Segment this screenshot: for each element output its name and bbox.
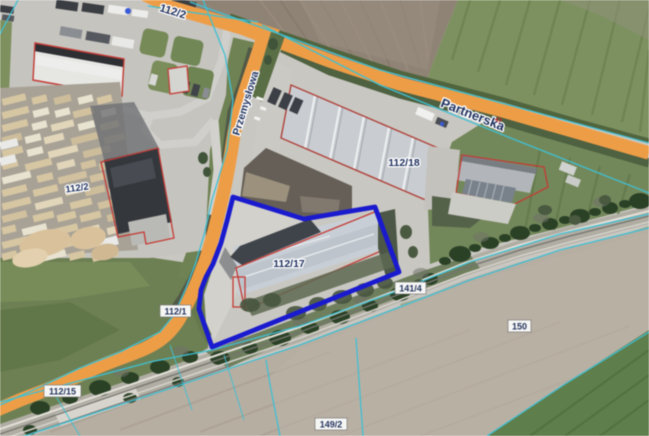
- svg-text:150: 150: [512, 322, 527, 332]
- svg-text:112/17: 112/17: [273, 258, 305, 270]
- svg-text:112/15: 112/15: [49, 387, 76, 397]
- svg-text:112/18: 112/18: [388, 157, 420, 169]
- svg-text:112/1: 112/1: [164, 307, 186, 317]
- svg-text:149/2: 149/2: [320, 420, 343, 430]
- svg-text:141/4: 141/4: [399, 284, 422, 294]
